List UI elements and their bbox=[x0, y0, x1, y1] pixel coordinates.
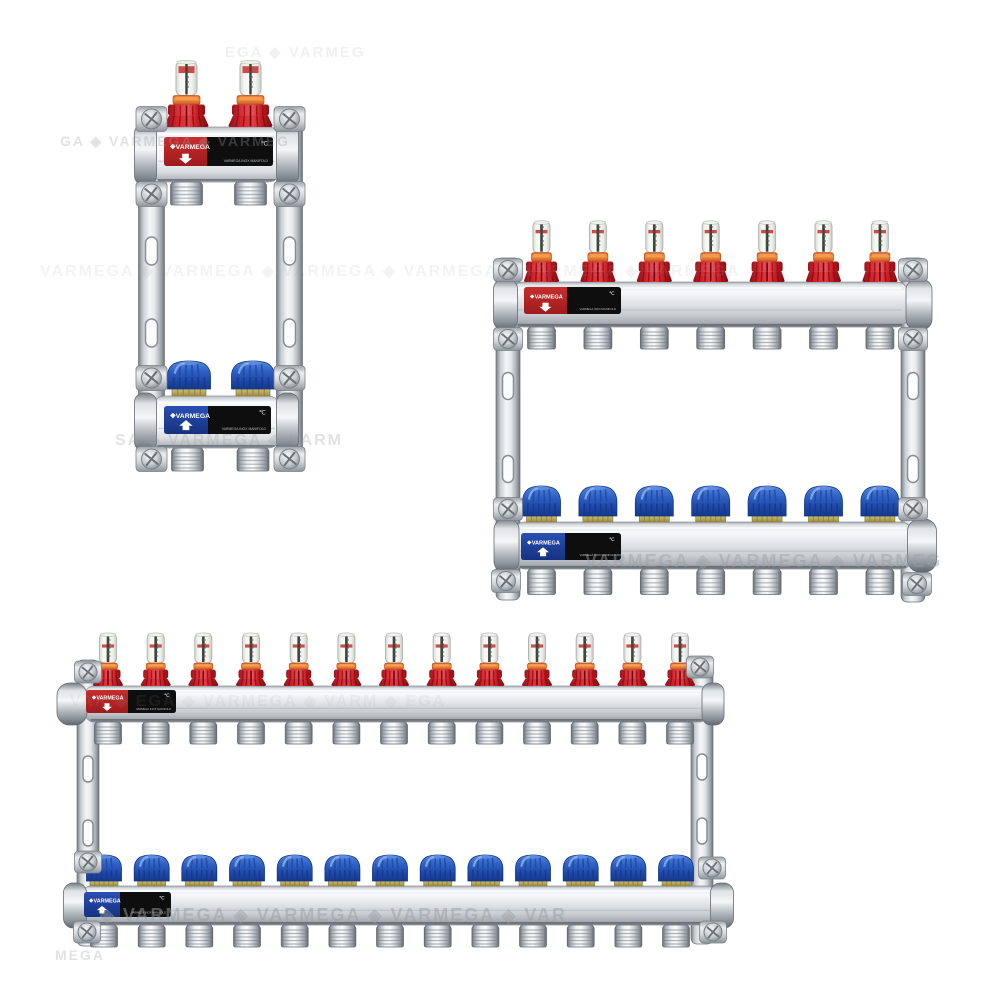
svg-text:EGA ◈ VARMEG: EGA ◈ VARMEG bbox=[225, 44, 366, 61]
svg-text:℃: ℃ bbox=[609, 537, 615, 543]
svg-text:SA ◈ VARMEGA ◈ VARM: SA ◈ VARMEGA ◈ VARM bbox=[115, 432, 343, 449]
svg-text:❖VARMEGA: ❖VARMEGA bbox=[527, 539, 560, 546]
svg-text:❖VARMEGA: ❖VARMEGA bbox=[530, 293, 563, 300]
svg-text:VARMEGA ◈ VARMEGA ◈ VARMEG: VARMEGA ◈ VARMEGA ◈ VARMEG bbox=[585, 551, 942, 571]
svg-text:VARMEGA ◈ VARMEGA ◈ VARMEGA ◈: VARMEGA ◈ VARMEGA ◈ VARMEGA ◈ VARMEGA ◈ … bbox=[40, 263, 741, 280]
svg-text:MEGA: MEGA bbox=[55, 947, 105, 963]
svg-text:◈ VARMEGA ◈ VARMEGA ◈ VARMEGA: ◈ VARMEGA ◈ VARMEGA ◈ VARMEGA ◈ VAR bbox=[99, 905, 567, 925]
svg-text:VARMEGA INOX MANIFOLD: VARMEGA INOX MANIFOLD bbox=[580, 307, 616, 311]
svg-text:GA ◈ VARMEGA ◈ VARMEG: GA ◈ VARMEGA ◈ VARMEG bbox=[60, 133, 290, 149]
svg-text:VAR ◈ EGA ◈ VARMEGA ◈ VARM ◈ E: VAR ◈ EGA ◈ VARMEGA ◈ VARM ◈ EGA bbox=[70, 693, 446, 710]
svg-text:℃: ℃ bbox=[609, 291, 615, 297]
svg-text:℃: ℃ bbox=[159, 896, 165, 902]
svg-text:❖VARMEGA: ❖VARMEGA bbox=[170, 412, 210, 420]
svg-text:❖VARMEGA: ❖VARMEGA bbox=[89, 898, 121, 905]
svg-text:VARMEGA INOX MANIFOLD: VARMEGA INOX MANIFOLD bbox=[222, 427, 267, 431]
svg-text:VARMEGA INOX MANIFOLD: VARMEGA INOX MANIFOLD bbox=[224, 159, 269, 163]
svg-text:℃: ℃ bbox=[259, 409, 266, 416]
